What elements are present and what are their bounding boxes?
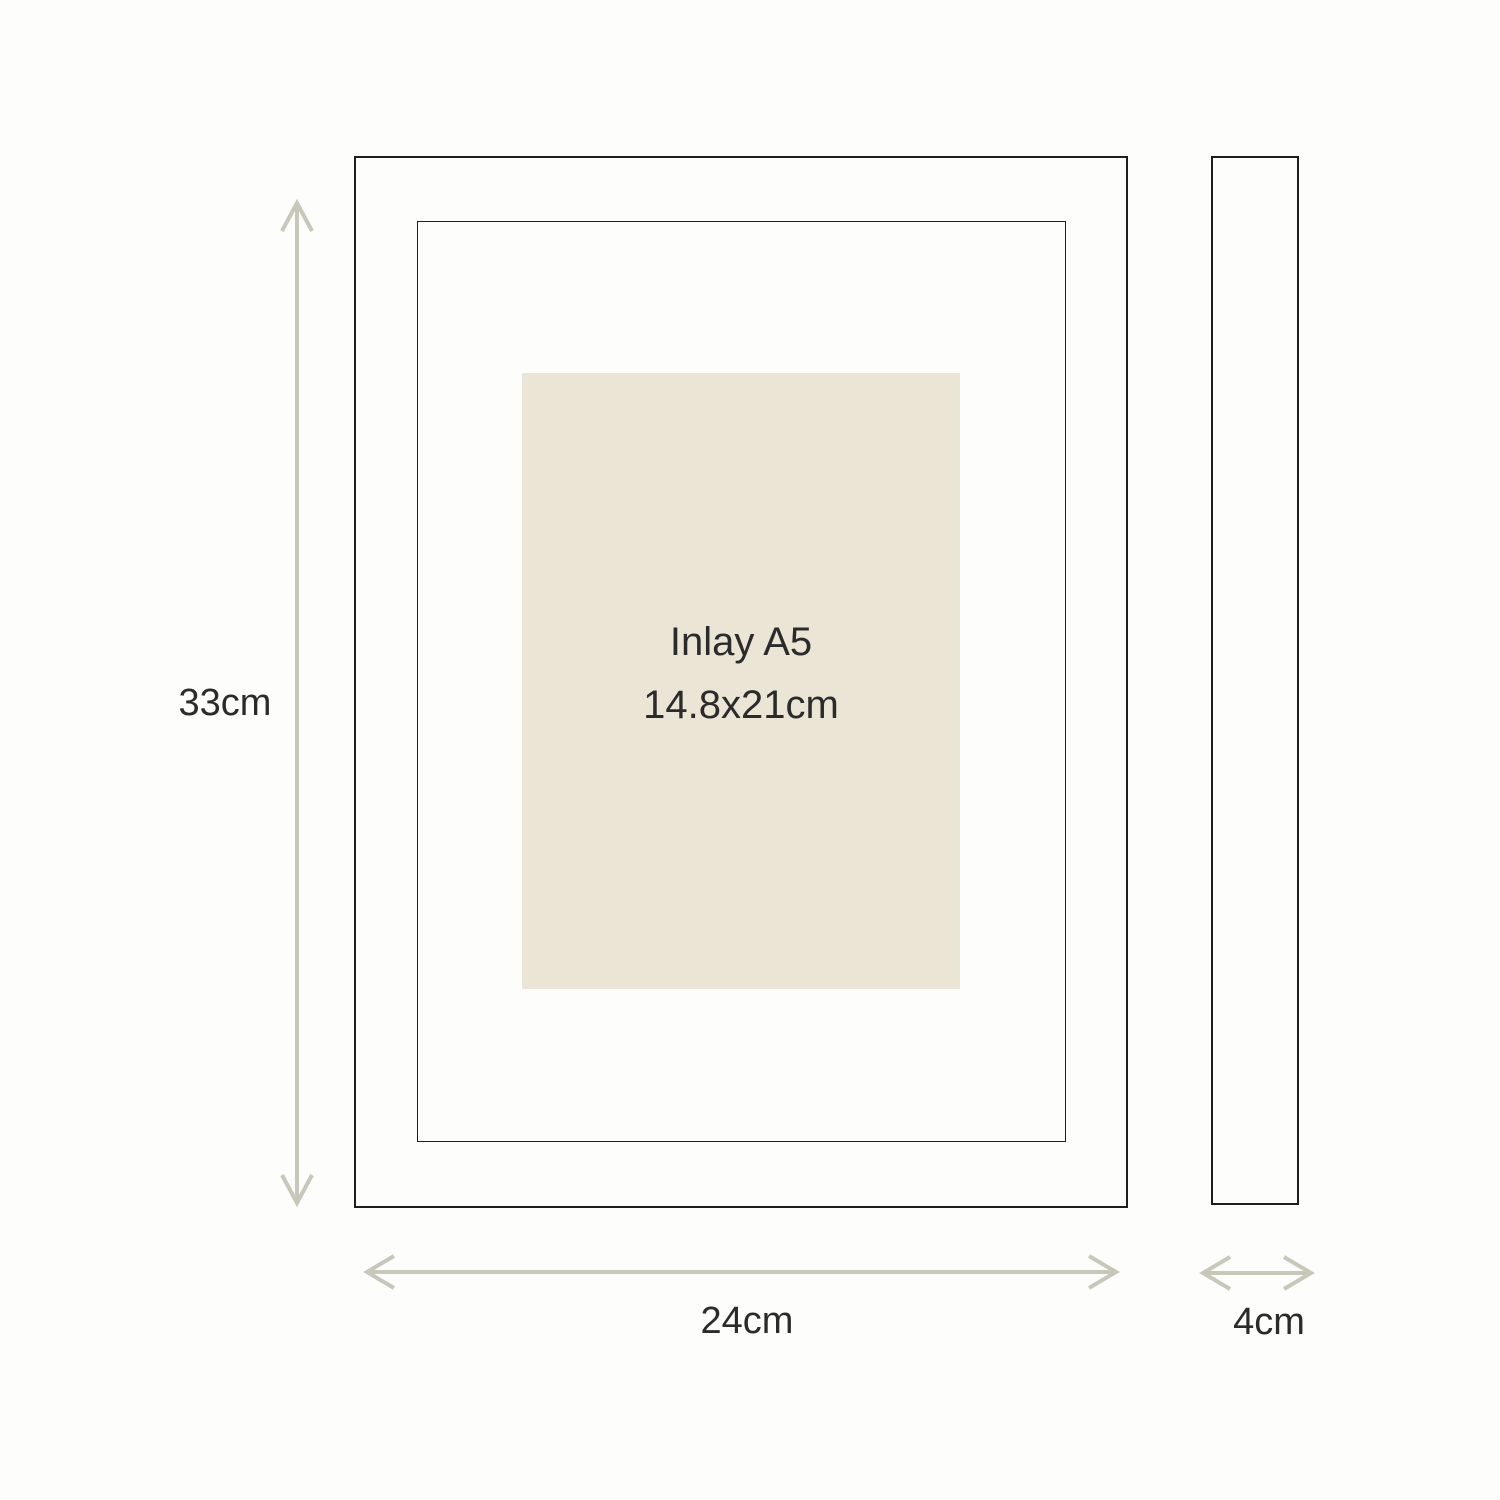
frame-side-profile-outline [1211, 156, 1299, 1205]
frame-dimension-diagram: { "diagram": { "front_view": { "inlay": … [0, 0, 1500, 1500]
inlay-area: Inlay A5 14.8x21cm [522, 373, 960, 989]
depth-dimension-label: 4cm [1169, 1303, 1369, 1341]
width-dimension-label: 24cm [647, 1302, 847, 1340]
inlay-size: 14.8x21cm [643, 685, 839, 725]
width-double-arrow-icon [367, 1256, 1116, 1288]
height-dimension-label: 33cm [130, 684, 320, 722]
depth-double-arrow-icon [1203, 1257, 1311, 1289]
inlay-title: Inlay A5 [670, 622, 812, 662]
